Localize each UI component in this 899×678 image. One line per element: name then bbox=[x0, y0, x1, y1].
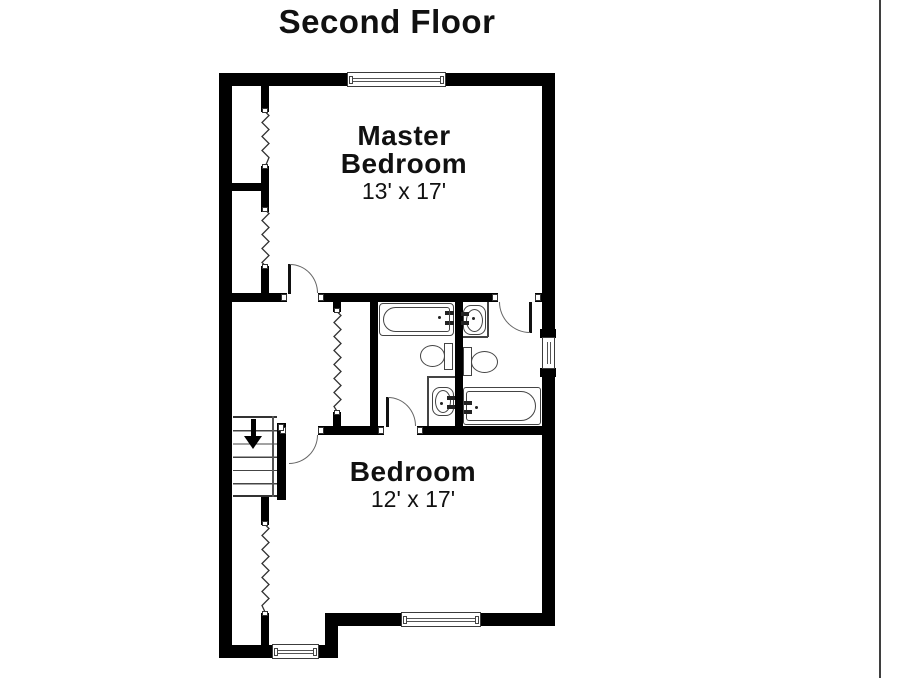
bedroom-name: Bedroom bbox=[350, 458, 476, 486]
zigzag-cap bbox=[334, 410, 340, 415]
window-cap bbox=[403, 616, 407, 624]
wall-closet-lower-stub bbox=[261, 266, 269, 302]
master-bathroom-door-arc bbox=[499, 302, 530, 333]
window-bottom-right bbox=[401, 612, 481, 627]
window-glass bbox=[352, 78, 441, 82]
wall-master-south-mid bbox=[318, 293, 498, 302]
stairs-down-arrowhead-icon bbox=[244, 436, 262, 449]
faucet-icon bbox=[445, 321, 449, 325]
faucet-icon bbox=[465, 312, 469, 316]
zigzag-cap bbox=[262, 207, 268, 212]
zigzag-cap bbox=[262, 521, 268, 526]
jamb-hallbath-door-left bbox=[378, 427, 384, 434]
jamb-bedroom-door-right bbox=[318, 427, 324, 434]
jamb-master-door-right bbox=[318, 294, 324, 301]
sink-drain-icon bbox=[472, 317, 475, 320]
wall-stair-east bbox=[277, 423, 286, 500]
master-bedroom-door-arc bbox=[290, 264, 318, 293]
zigzag-cap bbox=[334, 308, 340, 313]
closet-accordion-door-lower bbox=[261, 210, 270, 266]
faucet-icon bbox=[445, 311, 449, 315]
window-cap bbox=[475, 616, 479, 624]
masterbath-counter-edge bbox=[463, 336, 488, 338]
window-bottom-left bbox=[272, 644, 319, 659]
jamb-master-door-left bbox=[281, 294, 287, 301]
wall-left bbox=[219, 73, 232, 658]
jamb-masterbath-door-right bbox=[535, 294, 541, 301]
window-right-cap-bottom bbox=[540, 368, 556, 377]
zigzag-cap bbox=[262, 611, 268, 616]
faucet-icon bbox=[451, 396, 455, 400]
master-bedroom-label: Master Bedroom 13' x 17' bbox=[341, 122, 467, 204]
jamb-stair-wall-top bbox=[278, 424, 284, 431]
wall-hall-bath-west bbox=[370, 302, 378, 426]
window-cap bbox=[440, 76, 444, 84]
page-right-edge-line bbox=[879, 0, 881, 678]
floor-plan-page: Second Floor bbox=[0, 0, 899, 678]
master-bedroom-dimensions: 13' x 17' bbox=[341, 178, 467, 204]
master-bedroom-name-line2: Bedroom bbox=[341, 150, 467, 178]
zigzag-cap bbox=[262, 164, 268, 169]
hall-closet-accordion-door bbox=[333, 312, 342, 412]
faucet-icon bbox=[450, 321, 454, 325]
hallbath-bathtub-basin bbox=[383, 307, 450, 332]
hallbath-sink-basin bbox=[435, 390, 451, 413]
bedroom-closet-accordion-door bbox=[261, 525, 270, 613]
wall-master-south-left bbox=[219, 293, 287, 302]
window-cap bbox=[274, 648, 278, 656]
window-right bbox=[542, 337, 555, 369]
window-glass bbox=[277, 650, 314, 654]
faucet-icon bbox=[468, 410, 472, 414]
hall-bathroom-door-arc bbox=[388, 397, 416, 426]
wall-bath-south-left bbox=[318, 426, 384, 435]
faucet-icon bbox=[450, 311, 454, 315]
closet-accordion-door-upper bbox=[261, 112, 270, 166]
wall-closet-divider bbox=[232, 183, 262, 191]
wall-bedroom-closet-bottom-stub bbox=[261, 613, 269, 651]
tub-drain-icon bbox=[438, 316, 441, 319]
jamb-hallbath-door-right bbox=[417, 427, 423, 434]
window-cap bbox=[349, 76, 353, 84]
window-glass bbox=[547, 342, 551, 364]
masterbath-counter-edge bbox=[487, 302, 489, 337]
window-cap bbox=[313, 648, 317, 656]
stairs-down-arrow-icon bbox=[251, 419, 256, 437]
zigzag-cap bbox=[262, 264, 268, 269]
masterbath-toilet-bowl-icon bbox=[471, 351, 498, 373]
bedroom-dimensions: 12' x 17' bbox=[350, 486, 476, 512]
hallbath-counter-edge bbox=[427, 376, 429, 426]
wall-bath-south-right bbox=[417, 426, 546, 435]
hallbath-toilet-bowl-icon bbox=[420, 345, 445, 367]
faucet-icon bbox=[465, 321, 469, 325]
faucet-icon bbox=[468, 401, 472, 405]
bedroom-door-arc bbox=[289, 435, 318, 464]
wall-closet-middle bbox=[261, 166, 269, 212]
window-top bbox=[347, 72, 446, 87]
sink-drain-icon bbox=[440, 402, 443, 405]
hallbath-counter-edge bbox=[427, 376, 455, 378]
jamb-masterbath-door-left bbox=[492, 294, 498, 301]
bedroom-label: Bedroom 12' x 17' bbox=[350, 458, 476, 512]
master-bedroom-name-line1: Master bbox=[341, 122, 467, 150]
tub-drain-icon bbox=[475, 406, 478, 409]
hallbath-toilet-tank bbox=[444, 343, 453, 370]
stair-inner-line bbox=[272, 416, 274, 497]
zigzag-cap bbox=[262, 108, 268, 113]
page-title: Second Floor bbox=[279, 3, 496, 41]
window-glass bbox=[406, 618, 476, 622]
faucet-icon bbox=[451, 405, 455, 409]
